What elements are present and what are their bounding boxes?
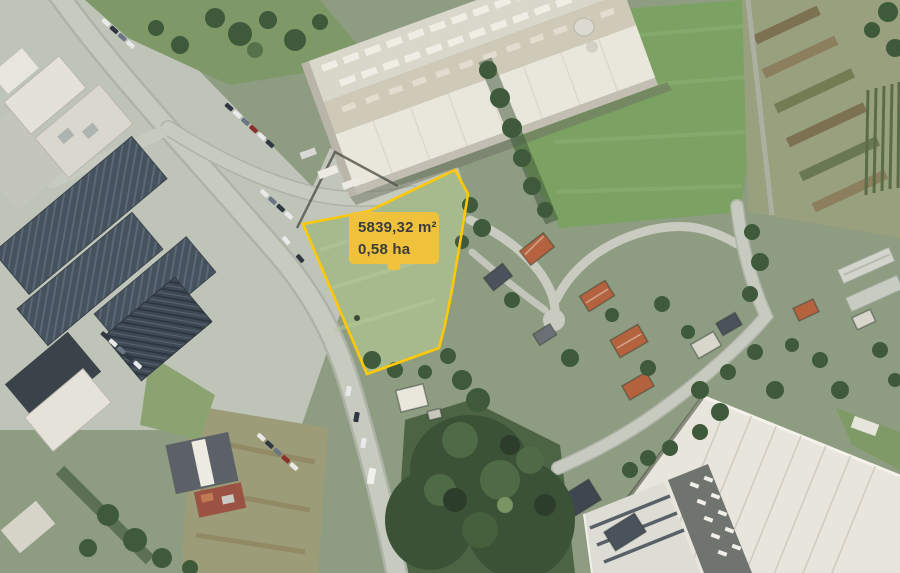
parcel-area-m2: 5839,32 m² xyxy=(358,217,439,239)
aerial-map-canvas[interactable] xyxy=(0,0,900,573)
map-stage[interactable]: 5839,32 m² 0,58 ha xyxy=(0,0,900,573)
parcel-area-ha: 0,58 ha xyxy=(358,239,439,261)
parcel-area-label: 5839,32 m² 0,58 ha xyxy=(349,212,439,264)
